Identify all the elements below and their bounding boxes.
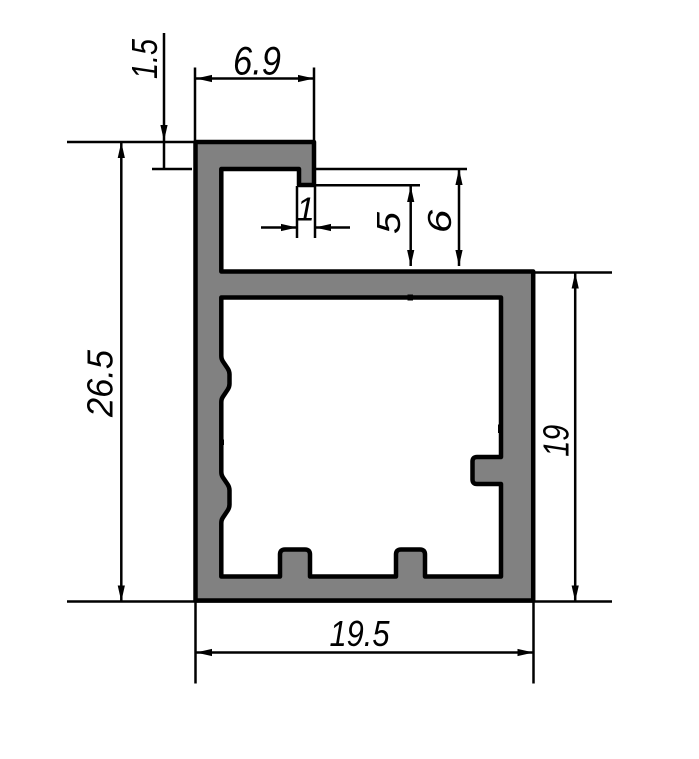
svg-text:6.9: 6.9 <box>233 40 281 84</box>
svg-text:6: 6 <box>421 209 458 233</box>
svg-text:5: 5 <box>370 211 407 234</box>
svg-text:1.5: 1.5 <box>124 38 165 79</box>
svg-text:26.5: 26.5 <box>80 349 121 418</box>
svg-text:19.5: 19.5 <box>330 613 391 654</box>
svg-text:19: 19 <box>536 425 577 457</box>
svg-text:1: 1 <box>296 191 314 228</box>
